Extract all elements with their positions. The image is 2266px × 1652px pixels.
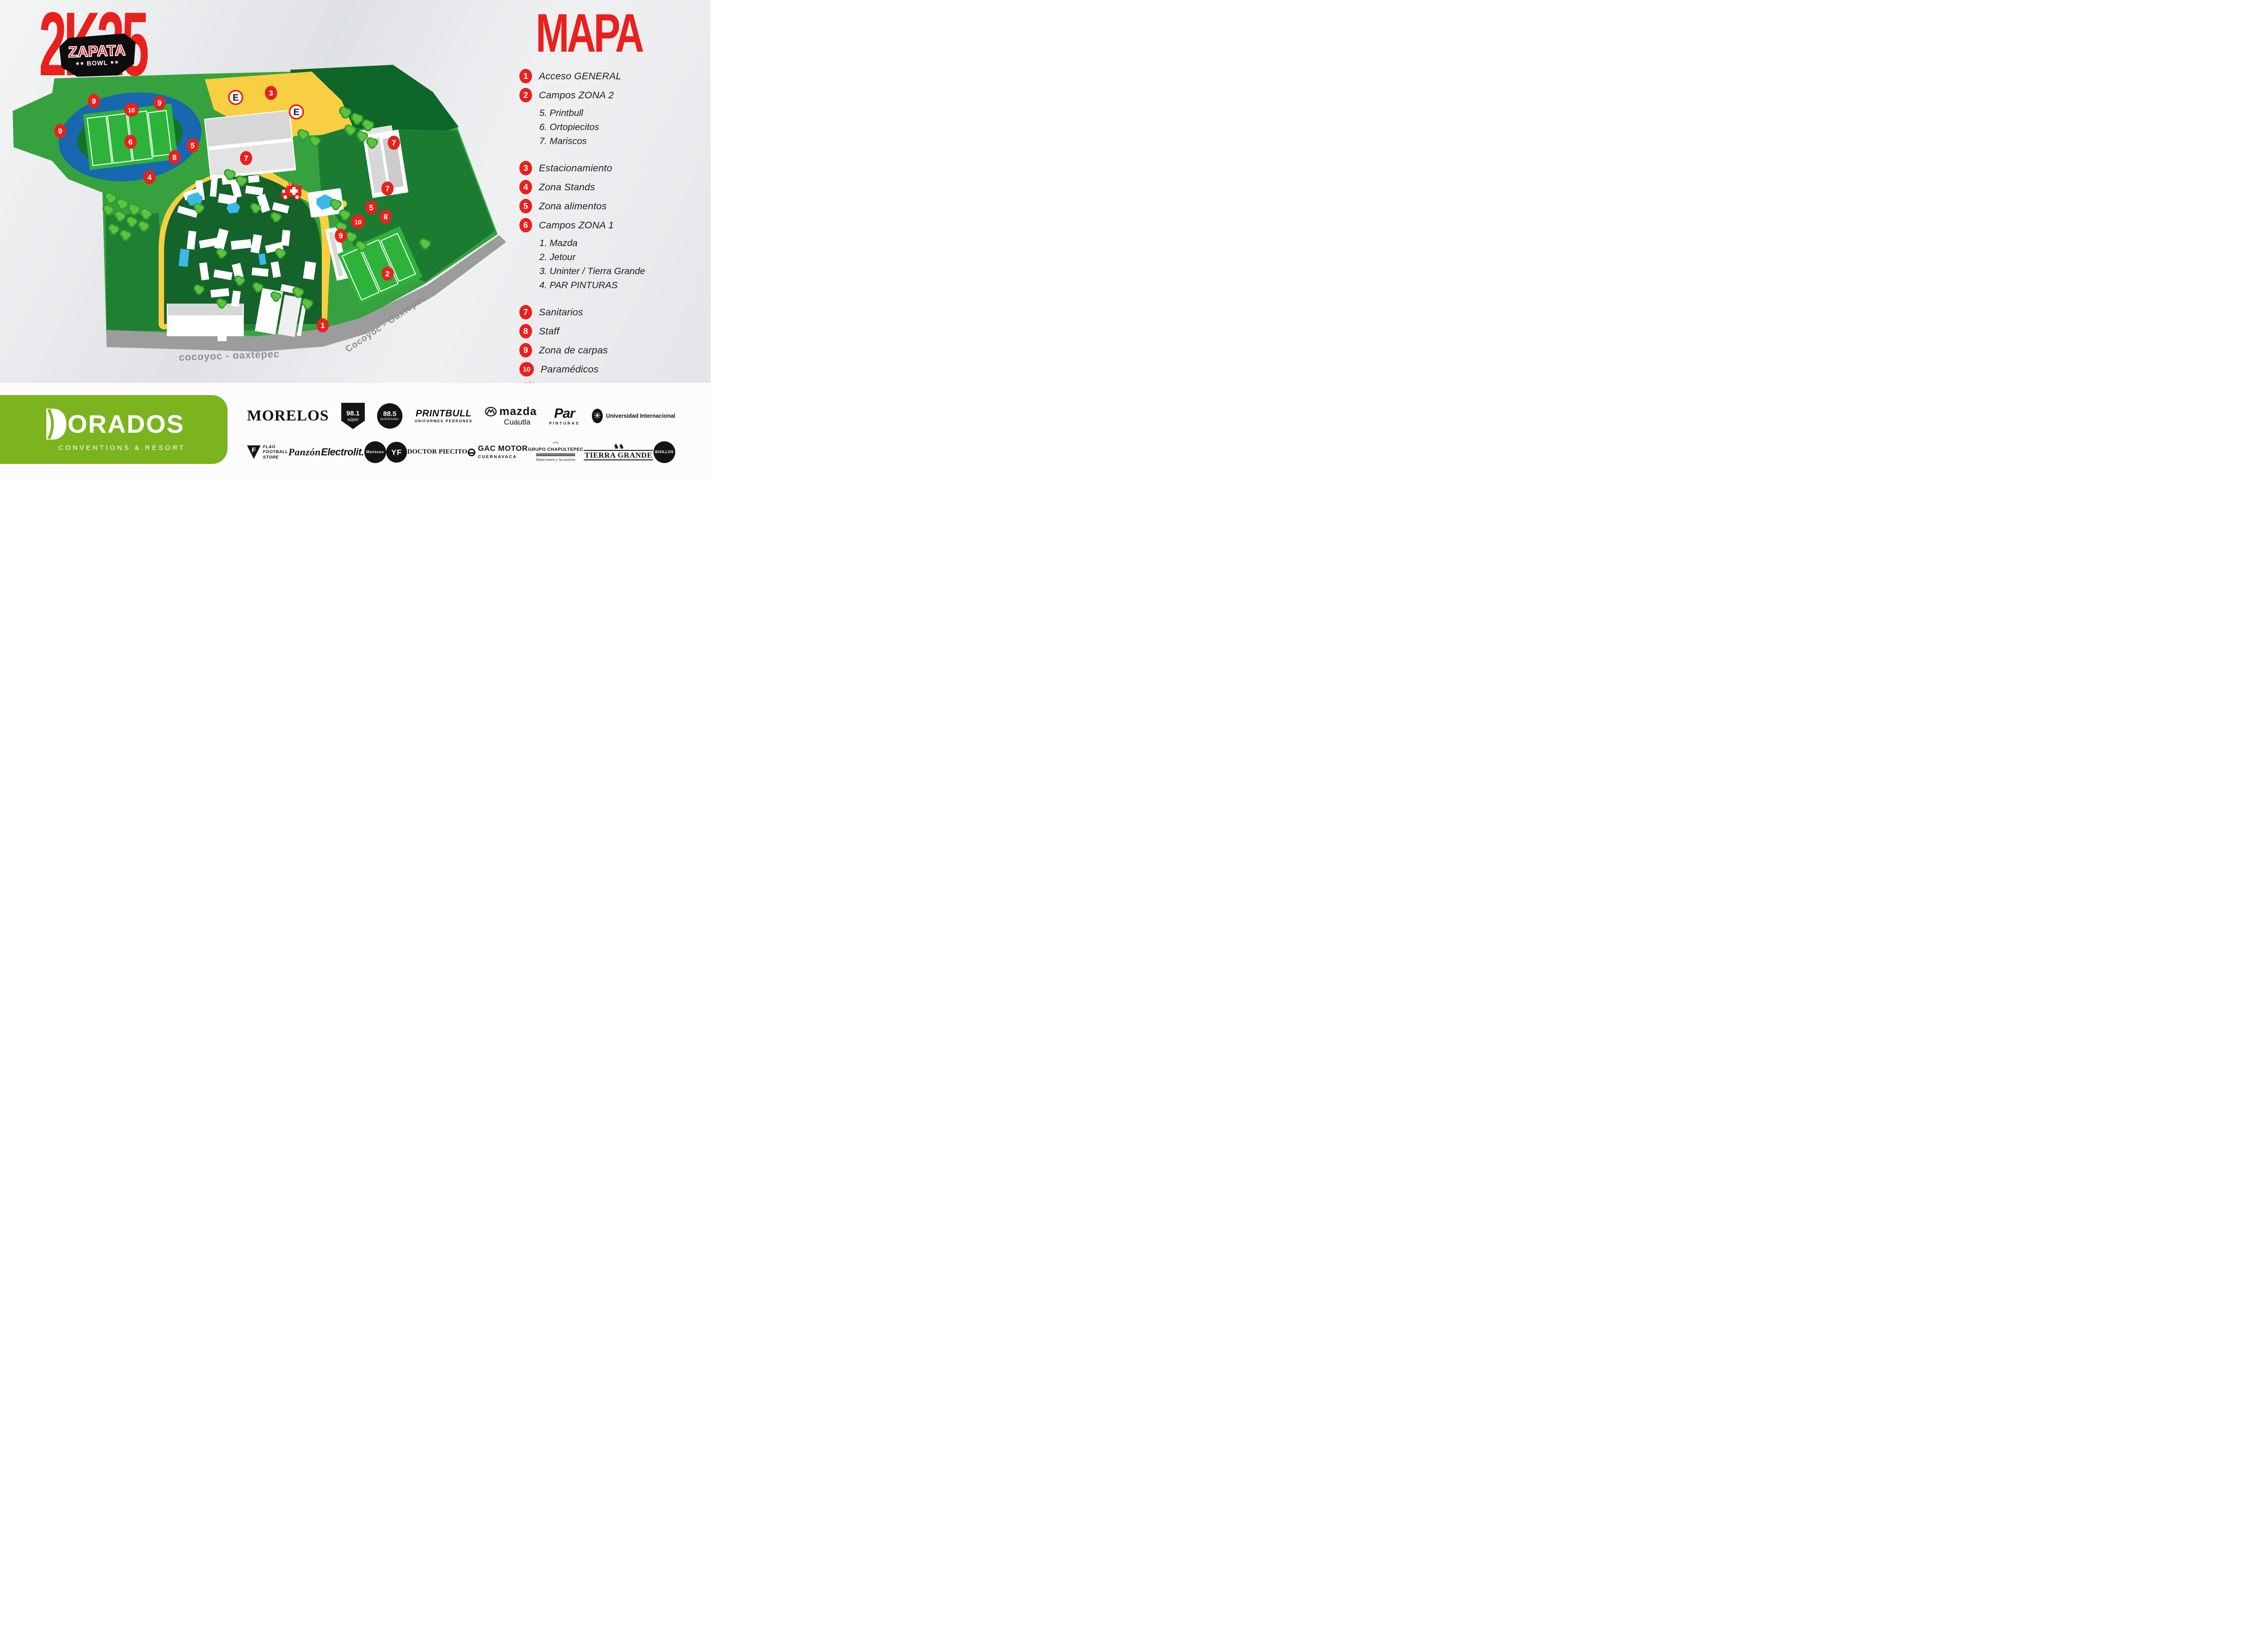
map-marker-7: 7	[240, 151, 252, 165]
svg-text:5: 5	[369, 203, 373, 212]
dorados-tagline: CONVENTIONS & RESORT	[58, 444, 186, 452]
svg-text:8: 8	[172, 153, 176, 162]
dorados-wordmark: ORADOS	[68, 411, 184, 437]
legend-subitem: 5. Printbull	[539, 108, 710, 119]
svg-text:7: 7	[385, 184, 389, 193]
legend-label: Estacionamiento	[539, 163, 612, 174]
sponsor-electrolit-: Electrolit.	[321, 447, 364, 457]
sponsor-printbull: PRINTBULLUNIFORMES PERRONES	[415, 409, 473, 423]
gac-emblem-icon	[468, 449, 475, 456]
map-marker-8: 8	[380, 210, 392, 224]
legend-label: Paramédicos	[541, 364, 599, 375]
legend-subitem: 3. Uninter / Tierra Grande	[539, 266, 710, 277]
sponsor-logos: MORELOS98.1súper88.5BUENÍSIMAPRINTBULLUN…	[247, 398, 675, 469]
sponsor-row-2: FFLAG FOOTBALL STOREPanzónElectrolit.Mar…	[247, 435, 675, 469]
legend-subitem: 2. Jetour	[539, 252, 710, 263]
sponsor-yf: YF	[386, 442, 407, 463]
legend-item: 9Zona de carpas	[519, 343, 710, 357]
legend-item: 3Estacionamiento	[519, 161, 710, 175]
legend-label: Acceso GENERAL	[539, 71, 621, 82]
svg-text:5: 5	[190, 141, 194, 150]
legend: 1Acceso GENERAL2Campos ZONA 25. Printbul…	[519, 69, 710, 398]
svg-text:7: 7	[244, 154, 248, 163]
legend-badge: 6	[519, 218, 532, 232]
legend-badge: 8	[519, 324, 532, 338]
svg-text:E: E	[232, 93, 238, 103]
legend-label: Staff	[539, 326, 559, 337]
poster-page: 2K25 ZAPATA ★★ BOWL ★★ MAPA	[0, 0, 711, 480]
sponsor-bisillos: BISILLOS	[654, 441, 675, 463]
venue-map: cocoyoc - oaxtepec Cocoyoc - Oaxtepec EE…	[5, 59, 512, 376]
svg-text:7: 7	[392, 139, 396, 147]
sponsor-row-1: MORELOS98.1súper88.5BUENÍSIMAPRINTBULLUN…	[247, 398, 675, 434]
sponsor-universidad-internacional: ✳Universidad Internacional	[592, 409, 675, 423]
map-marker-1: 1	[317, 319, 329, 333]
footer-bar: ORADOS CONVENTIONS & RESORT MORELOS98.1s…	[0, 383, 711, 480]
svg-text:3: 3	[269, 89, 273, 97]
legend-badge: 10	[519, 362, 534, 377]
map-marker-9: 9	[154, 96, 166, 110]
flag-football-shield-icon: F	[247, 445, 261, 459]
sponsor-doctor-piecito: DOCTOR PIECITO	[407, 448, 467, 456]
mazda-wing-icon	[485, 407, 497, 416]
map-marker-4: 4	[144, 170, 156, 184]
map-marker-7: 7	[382, 182, 394, 196]
legend-item: 8Staff	[519, 324, 710, 338]
map-marker-10: 10	[124, 103, 139, 117]
map-marker-9: 9	[88, 94, 100, 108]
sponsor-par: ParPINTURAS	[549, 407, 580, 425]
sponsor-panz-n: Panzón	[288, 447, 320, 457]
legend-item: 10Paramédicos	[519, 362, 710, 377]
road-label-bottom: cocoyoc - oaxtepec	[179, 348, 280, 363]
sponsor-gac-motor: GAC MOTORCUERNAVACA	[468, 444, 528, 460]
legend-item: 5Zona alimentos	[519, 199, 710, 213]
legend-badge: 2	[519, 88, 532, 102]
sponsor-mazda: mazdaCuautla	[485, 406, 537, 426]
map-marker-5: 5	[187, 139, 199, 153]
horses-icon: ♞♞	[613, 444, 624, 449]
dorados-d-icon	[43, 408, 68, 440]
legend-item: 6Campos ZONA 1	[519, 218, 710, 232]
legend-subitem: 4. PAR PINTURAS	[539, 280, 710, 291]
map-marker-8: 8	[169, 150, 181, 164]
parking-sign: E	[290, 105, 303, 119]
sponsor-88-5: 88.5BUENÍSIMA	[377, 403, 402, 429]
stripe-bar	[536, 454, 575, 457]
map-marker-9: 9	[54, 124, 67, 138]
legend-item: 7Sanitarios	[519, 305, 710, 319]
map-marker-5: 5	[365, 201, 378, 215]
svg-text:6: 6	[128, 138, 132, 146]
map-marker-6: 6	[125, 135, 137, 149]
map-marker-7: 7	[388, 136, 400, 150]
legend-label: Campos ZONA 2	[539, 90, 614, 101]
svg-text:2: 2	[385, 270, 389, 278]
legend-label: Zona alimentos	[539, 201, 607, 212]
svg-text:9: 9	[339, 232, 343, 240]
svg-text:4: 4	[147, 173, 152, 182]
sponsor-tierra-grande: ♞♞TIERRA GRANDE	[584, 444, 654, 460]
svg-text:1: 1	[320, 321, 324, 330]
legend-item: 1Acceso GENERAL	[519, 69, 710, 83]
legend-item: 4Zona Stands	[519, 180, 710, 194]
svg-text:9: 9	[58, 127, 62, 135]
dorados-logo: ORADOS CONVENTIONS & RESORT	[0, 395, 228, 464]
legend-badge: 1	[519, 69, 532, 83]
svg-text:10: 10	[128, 106, 135, 114]
sponsor-mariscos: Mariscos	[364, 441, 386, 463]
sponsor-morelos: MORELOS	[247, 408, 329, 424]
legend-item: 2Campos ZONA 2	[519, 88, 710, 102]
legend-badge: 4	[519, 180, 532, 194]
page-title: MAPA	[536, 8, 642, 58]
svg-text:10: 10	[354, 218, 362, 226]
sponsor-flag-football-store: FFLAG FOOTBALL STORE	[247, 444, 288, 460]
svg-text:9: 9	[157, 99, 161, 107]
map-marker-10: 10	[351, 215, 365, 229]
legend-badge: 3	[519, 161, 532, 175]
map-marker-9: 9	[335, 229, 347, 243]
uninter-seal-icon: ✳	[592, 409, 603, 423]
legend-subitem: 6. Ortopiecitos	[539, 122, 710, 133]
legend-label: Zona de carpas	[539, 345, 608, 356]
svg-text:E: E	[293, 107, 299, 117]
svg-text:9: 9	[92, 97, 96, 106]
map-marker-3: 3	[265, 86, 277, 100]
legend-badge: 5	[519, 199, 532, 213]
parking-sign: E	[229, 91, 242, 104]
legend-label: Campos ZONA 1	[539, 220, 614, 231]
legend-label: Zona Stands	[539, 182, 595, 193]
legend-label: Sanitarios	[539, 307, 583, 318]
svg-text:8: 8	[383, 213, 387, 221]
map-marker-2: 2	[382, 267, 394, 281]
legend-subitem: 1. Mazda	[539, 238, 710, 249]
legend-subitem: 7. Mariscos	[539, 136, 710, 147]
badge-title: ZAPATA	[68, 43, 126, 58]
legend-badge: 7	[519, 305, 532, 319]
sponsor-grupo-chapultepec: ⌒GRUPO CHAPULTEPECRefacciones y Accesori…	[528, 443, 583, 462]
sponsor-98-1: 98.1súper	[341, 403, 365, 429]
legend-badge: 9	[519, 343, 532, 357]
